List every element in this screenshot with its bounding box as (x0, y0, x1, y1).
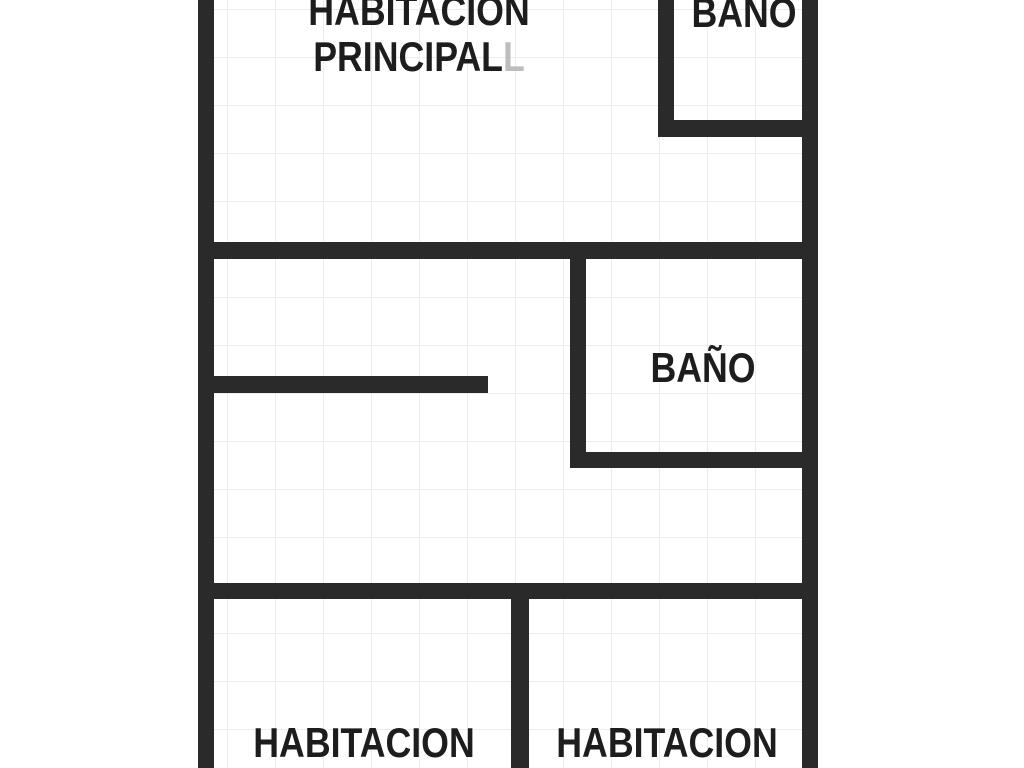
top-bathroom-bottom-wall (658, 120, 818, 137)
master-bedroom-bottom-wall (198, 242, 818, 259)
hall-partition-wall (198, 376, 488, 393)
bedrooms-top-wall (198, 583, 818, 599)
bedrooms-divider-wall (511, 590, 529, 768)
room-label-bano-top: BAÑO (691, 0, 796, 36)
mid-bathroom-bottom-wall (570, 452, 818, 468)
room-label-bano-middle: BAÑO (650, 345, 755, 391)
room-label-habitacion-principal-line2: PRINCIPALL (308, 34, 529, 80)
ghost-letter: L (503, 33, 525, 80)
room-label-habitacion-right: HABITACION (556, 720, 777, 766)
top-bathroom-left-wall (658, 0, 674, 137)
outer-wall-right (802, 0, 818, 768)
room-label-habitacion-principal: HABITACION PRINCIPALL (308, 0, 529, 80)
floor-plan: HABITACION PRINCIPALL BAÑO BAÑO HABITACI… (0, 0, 1024, 768)
room-label-habitacion-left: HABITACION (253, 720, 474, 766)
mid-bathroom-left-wall (570, 242, 586, 468)
room-label-habitacion-principal-line1: HABITACION (308, 0, 529, 34)
